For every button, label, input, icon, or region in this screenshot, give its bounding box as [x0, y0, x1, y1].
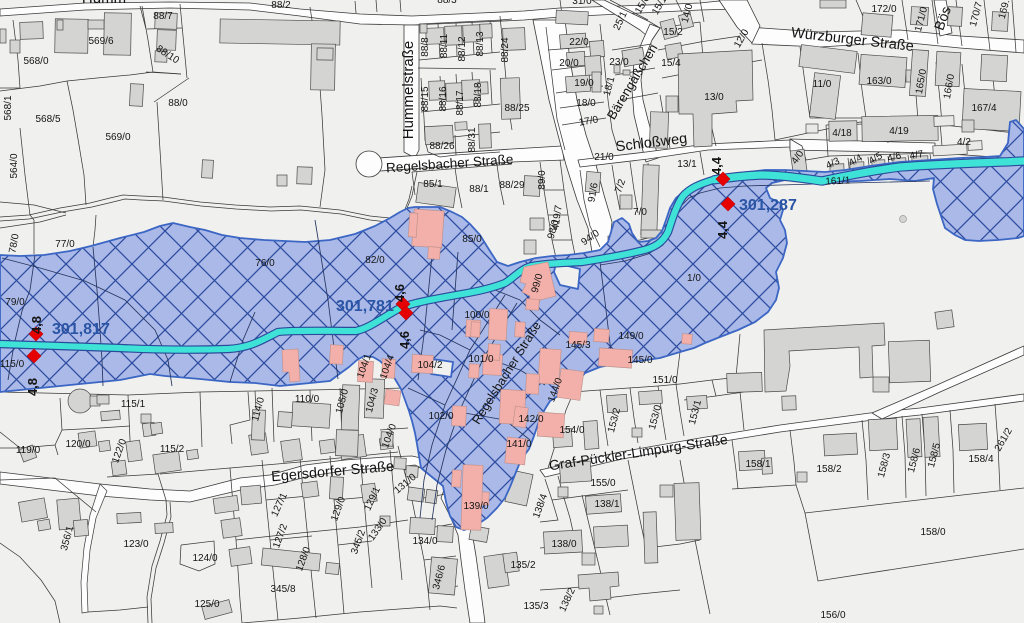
svg-text:4/18: 4/18	[832, 128, 852, 139]
svg-text:88/11: 88/11	[439, 33, 450, 58]
svg-text:88/15: 88/15	[420, 86, 431, 111]
svg-text:156/0: 156/0	[820, 610, 845, 621]
svg-text:88/7: 88/7	[153, 11, 173, 22]
svg-text:138/1: 138/1	[594, 499, 619, 510]
svg-text:4,6: 4,6	[392, 284, 407, 302]
svg-text:88/26: 88/26	[429, 141, 454, 152]
svg-text:88/17: 88/17	[455, 90, 466, 115]
svg-text:120/0: 120/0	[65, 439, 90, 450]
svg-text:151/0: 151/0	[652, 375, 677, 386]
svg-text:569/6: 569/6	[88, 36, 113, 47]
svg-text:163/0: 163/0	[866, 76, 891, 87]
svg-text:4/19: 4/19	[889, 126, 909, 137]
svg-text:7/0: 7/0	[633, 207, 647, 218]
svg-text:167/4: 167/4	[971, 103, 996, 114]
svg-text:4/2: 4/2	[957, 137, 971, 148]
svg-text:85/0: 85/0	[462, 234, 482, 245]
svg-text:21/0: 21/0	[594, 152, 614, 163]
svg-text:115/2: 115/2	[160, 444, 185, 455]
svg-text:134/0: 134/0	[412, 536, 437, 547]
svg-text:20/0: 20/0	[559, 58, 579, 69]
svg-text:88/29: 88/29	[499, 180, 524, 191]
svg-text:79/0: 79/0	[5, 297, 25, 308]
svg-text:564/0: 564/0	[9, 153, 20, 178]
svg-text:22/0: 22/0	[569, 37, 589, 48]
svg-text:158/1: 158/1	[745, 459, 770, 470]
svg-text:15/4: 15/4	[661, 58, 681, 69]
svg-text:88/16: 88/16	[438, 86, 449, 111]
svg-text:125/0: 125/0	[194, 599, 219, 610]
svg-text:138/0: 138/0	[551, 539, 576, 550]
svg-text:77/0: 77/0	[55, 239, 75, 250]
svg-text:142/0: 142/0	[518, 414, 543, 425]
svg-text:88/3: 88/3	[437, 0, 457, 6]
svg-text:110/0: 110/0	[295, 394, 320, 405]
svg-text:135/2: 135/2	[510, 560, 535, 571]
svg-text:88/8: 88/8	[420, 37, 431, 57]
svg-text:145/0: 145/0	[627, 355, 652, 366]
svg-text:15/2: 15/2	[663, 27, 683, 38]
svg-text:88/12: 88/12	[457, 36, 468, 61]
svg-text:301,781: 301,781	[336, 298, 394, 315]
svg-text:88/25: 88/25	[504, 103, 529, 114]
svg-text:4,4: 4,4	[709, 156, 724, 175]
svg-text:301,287: 301,287	[739, 197, 797, 214]
svg-text:568/0: 568/0	[23, 56, 48, 67]
svg-text:135/3: 135/3	[523, 601, 548, 612]
svg-text:13/0: 13/0	[704, 92, 724, 103]
svg-text:1/0: 1/0	[687, 273, 701, 284]
svg-text:158/0: 158/0	[920, 527, 945, 538]
svg-text:82/0: 82/0	[365, 255, 385, 266]
svg-text:23/0: 23/0	[609, 57, 629, 68]
svg-text:345/8: 345/8	[270, 584, 295, 595]
svg-text:88/13: 88/13	[475, 31, 486, 56]
svg-text:145/3: 145/3	[565, 340, 590, 351]
svg-text:4,4: 4,4	[715, 220, 730, 239]
svg-text:172/0: 172/0	[871, 4, 896, 15]
svg-text:161/1: 161/1	[825, 175, 851, 187]
svg-text:76/0: 76/0	[255, 258, 275, 269]
svg-text:89/0: 89/0	[537, 170, 548, 190]
svg-text:85/1: 85/1	[423, 179, 443, 190]
svg-text:154/0: 154/0	[559, 425, 584, 436]
svg-text:31/0: 31/0	[572, 0, 592, 7]
svg-text:101/0: 101/0	[468, 354, 493, 365]
svg-text:19/0: 19/0	[574, 78, 594, 89]
svg-text:4,6: 4,6	[397, 331, 412, 349]
svg-text:301,817: 301,817	[52, 321, 110, 338]
svg-text:18/0: 18/0	[576, 98, 596, 109]
svg-text:11/0: 11/0	[813, 79, 832, 90]
svg-text:149/0: 149/0	[618, 331, 643, 342]
svg-text:13/1: 13/1	[677, 159, 697, 170]
svg-text:139/0: 139/0	[463, 501, 488, 512]
svg-text:Hummelstraße: Hummelstraße	[400, 41, 417, 139]
svg-text:158/4: 158/4	[968, 454, 993, 465]
svg-text:88/0: 88/0	[168, 98, 188, 109]
svg-text:102/0: 102/0	[428, 411, 453, 422]
svg-text:88/24: 88/24	[500, 37, 511, 62]
svg-text:123/0: 123/0	[123, 539, 148, 550]
svg-text:568/5: 568/5	[35, 114, 60, 125]
svg-text:141/0: 141/0	[506, 439, 531, 450]
svg-text:158/2: 158/2	[816, 464, 841, 475]
svg-text:115/0: 115/0	[0, 359, 25, 370]
svg-text:88/1: 88/1	[469, 184, 489, 195]
svg-text:88/31: 88/31	[467, 127, 478, 152]
svg-text:115/1: 115/1	[121, 399, 146, 410]
svg-text:568/1: 568/1	[3, 95, 14, 120]
svg-text:100/0: 100/0	[464, 310, 489, 321]
svg-text:4,8: 4,8	[25, 378, 40, 396]
svg-text:Humm: Humm	[82, 0, 126, 7]
svg-text:88/2: 88/2	[271, 0, 291, 11]
svg-text:88/18: 88/18	[473, 82, 484, 107]
svg-text:119/0: 119/0	[16, 445, 41, 456]
svg-text:155/0: 155/0	[590, 478, 615, 489]
svg-text:104/2: 104/2	[417, 360, 442, 371]
svg-text:4,8: 4,8	[29, 316, 44, 334]
svg-text:124/0: 124/0	[192, 553, 217, 564]
svg-text:569/0: 569/0	[105, 132, 130, 143]
